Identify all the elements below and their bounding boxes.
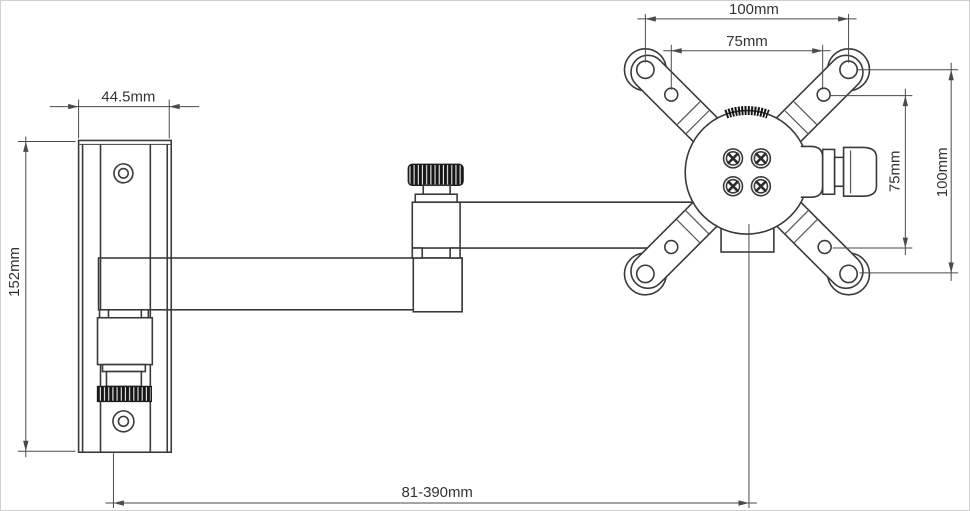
tilt-knob — [801, 146, 877, 197]
technical-drawing-canvas: 44.5mm 152mm 100mm 75mm — [0, 0, 970, 511]
wall-hinge-cylinder — [98, 318, 153, 365]
dim-label-vesa-inner-height: 75mm — [886, 151, 903, 193]
dim-vesa-inner-width: 75mm — [663, 33, 830, 90]
dim-label-arm-reach: 81-390mm — [401, 484, 472, 501]
elbow-lower-joint — [413, 258, 462, 312]
vesa-plate — [624, 48, 876, 295]
wall-screw-hole-bottom — [113, 411, 134, 432]
dim-label-vesa-outer-height: 100mm — [934, 147, 951, 197]
dim-label-wall-plate-width: 44.5mm — [101, 89, 155, 106]
dim-wall-plate-width: 44.5mm — [50, 89, 199, 139]
vesa-center-body — [685, 111, 809, 235]
dim-label-vesa-outer-width: 100mm — [729, 1, 779, 18]
dim-wall-plate-height: 152mm — [6, 136, 76, 457]
wall-plate — [79, 140, 172, 452]
wall-plate-body — [79, 140, 172, 452]
wall-screw-hole-top — [114, 164, 133, 183]
wall-mount-drawing: 44.5mm 152mm 100mm 75mm — [1, 1, 969, 510]
adjustment-knob-elbow — [408, 164, 463, 185]
arm-assembly — [98, 164, 694, 401]
elbow-upper-joint — [412, 202, 460, 248]
dim-label-vesa-inner-width: 75mm — [726, 33, 768, 50]
dim-label-wall-plate-height: 152mm — [6, 247, 23, 297]
adjustment-knob-wall — [98, 386, 152, 401]
